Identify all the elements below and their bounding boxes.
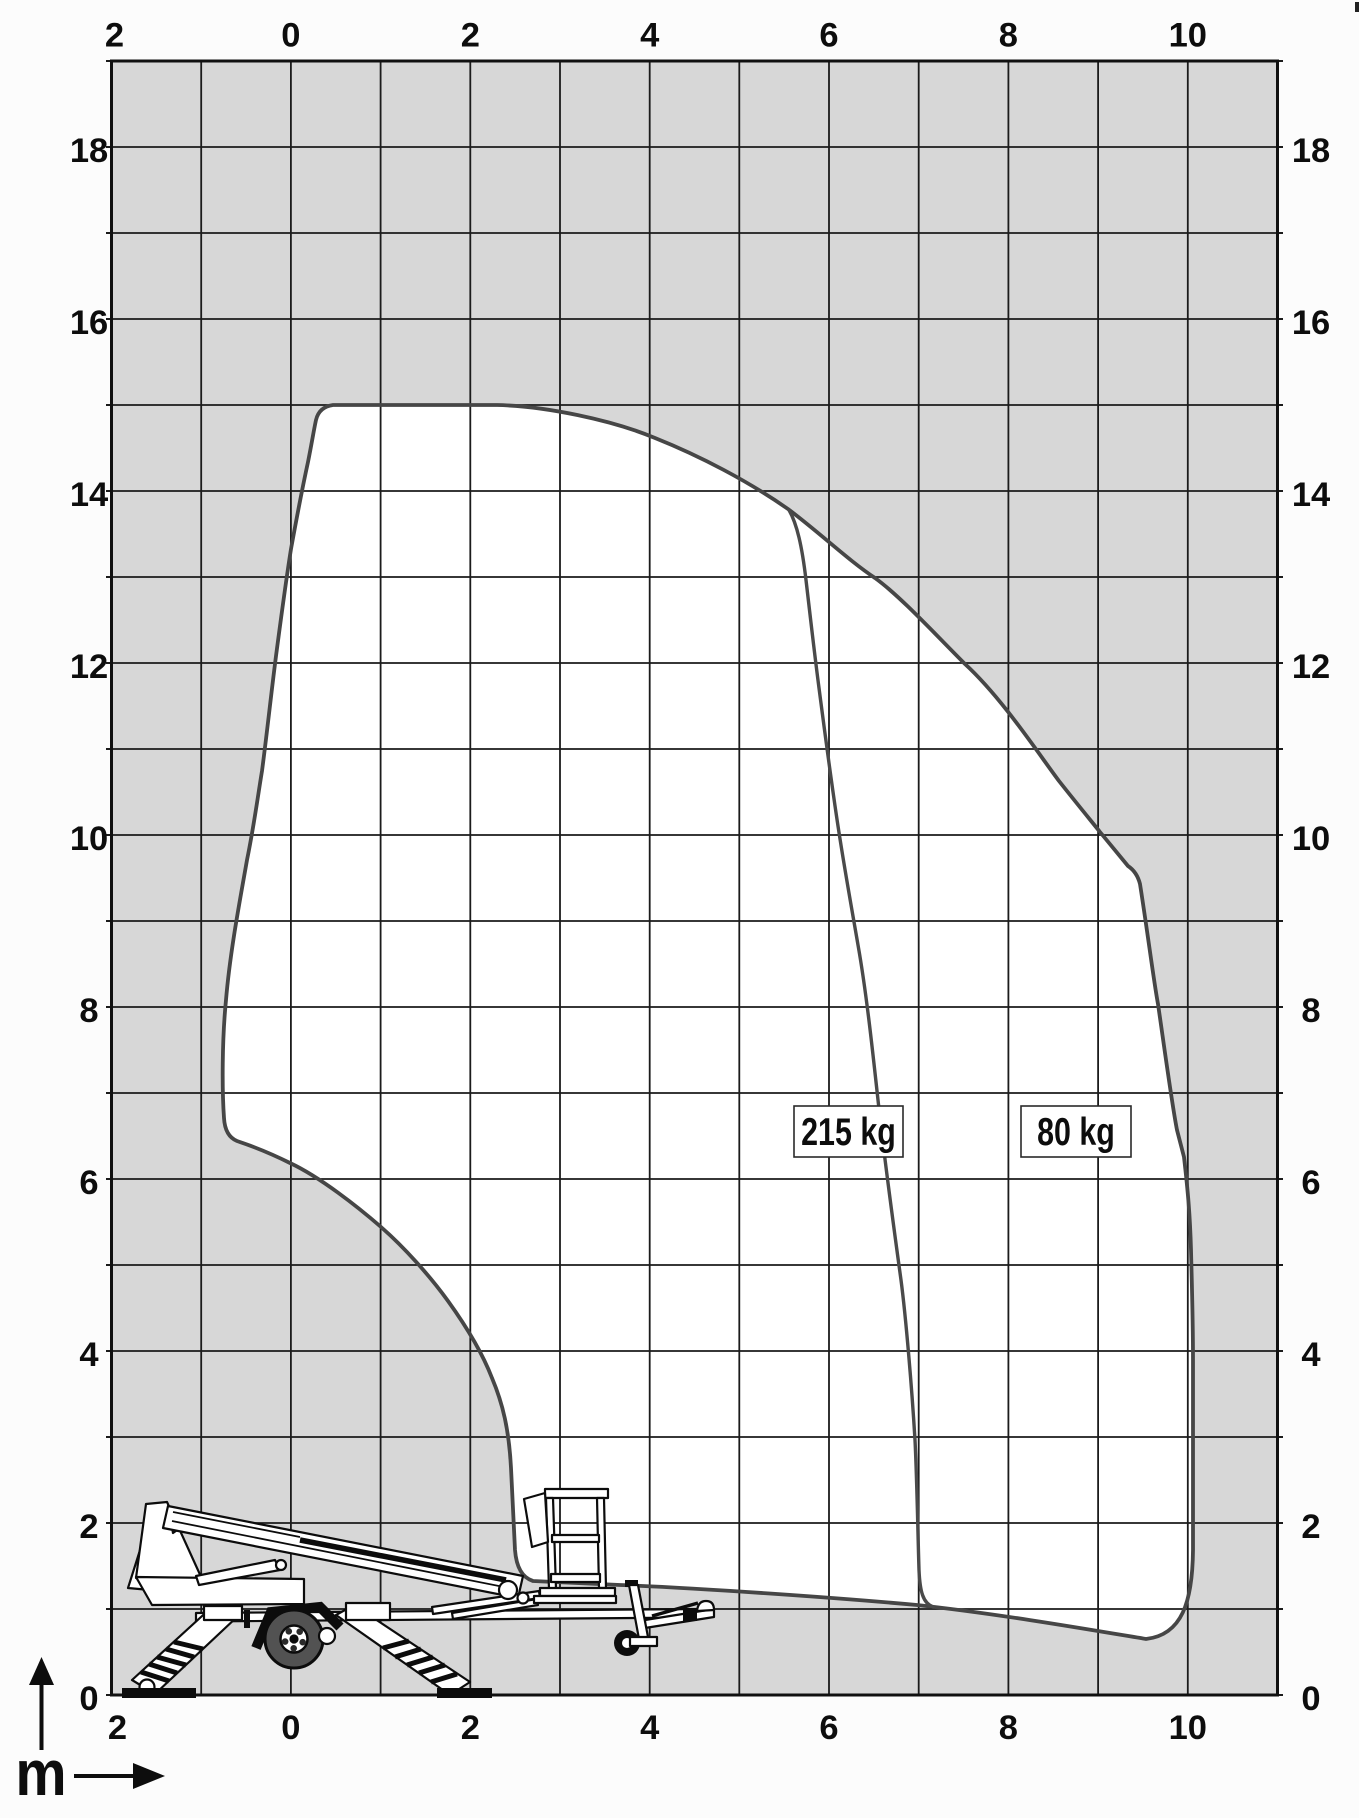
svg-text:18: 18 bbox=[1292, 132, 1330, 170]
svg-text:0: 0 bbox=[79, 1680, 98, 1718]
svg-text:14: 14 bbox=[70, 476, 108, 514]
svg-text:6: 6 bbox=[79, 1164, 98, 1202]
svg-text:2: 2 bbox=[105, 17, 124, 55]
svg-text:2: 2 bbox=[1301, 1508, 1320, 1546]
svg-text:215 kg: 215 kg bbox=[801, 1110, 896, 1153]
svg-text:10: 10 bbox=[1169, 1709, 1207, 1747]
svg-text:2: 2 bbox=[461, 1709, 480, 1747]
svg-text:16: 16 bbox=[70, 304, 108, 342]
svg-text:0: 0 bbox=[281, 1709, 300, 1747]
svg-text:2: 2 bbox=[79, 1508, 98, 1546]
svg-text:4: 4 bbox=[640, 17, 659, 55]
svg-text:0: 0 bbox=[1301, 1680, 1320, 1718]
svg-text:0: 0 bbox=[281, 17, 300, 55]
svg-text:4: 4 bbox=[1301, 1336, 1320, 1374]
svg-text:80 kg: 80 kg bbox=[1037, 1110, 1115, 1153]
svg-text:12: 12 bbox=[70, 648, 108, 686]
svg-text:6: 6 bbox=[1301, 1164, 1320, 1202]
svg-text:4: 4 bbox=[79, 1336, 98, 1374]
svg-text:8: 8 bbox=[79, 992, 98, 1030]
svg-text:6: 6 bbox=[819, 17, 838, 55]
svg-text:8: 8 bbox=[999, 1709, 1018, 1747]
svg-text:18: 18 bbox=[70, 132, 108, 170]
svg-text:4: 4 bbox=[640, 1709, 659, 1747]
svg-text:2: 2 bbox=[461, 17, 480, 55]
svg-text:14: 14 bbox=[1292, 476, 1330, 514]
svg-text:10: 10 bbox=[1169, 17, 1207, 55]
svg-text:6: 6 bbox=[819, 1709, 838, 1747]
svg-text:8: 8 bbox=[1301, 992, 1320, 1030]
svg-text:10: 10 bbox=[70, 820, 108, 858]
svg-text:12: 12 bbox=[1292, 648, 1330, 686]
svg-text:8: 8 bbox=[999, 17, 1018, 55]
svg-text:16: 16 bbox=[1292, 304, 1330, 342]
svg-text:2: 2 bbox=[108, 1709, 127, 1747]
svg-text:10: 10 bbox=[1292, 820, 1330, 858]
